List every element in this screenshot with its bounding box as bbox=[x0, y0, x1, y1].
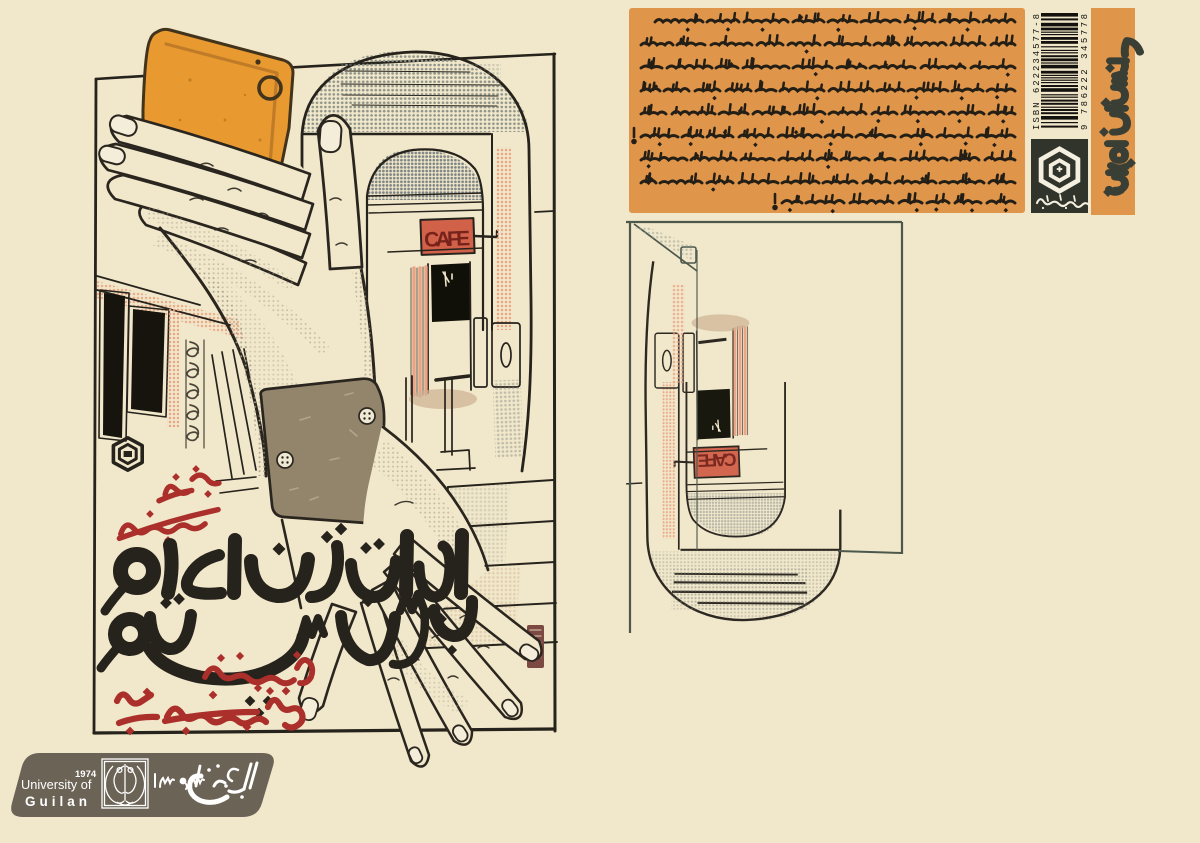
svg-text:Guilan: Guilan bbox=[25, 794, 91, 809]
svg-text:University of: University of bbox=[21, 777, 92, 792]
svg-text:ISBN 622234577-8: ISBN 622234577-8 bbox=[1032, 14, 1042, 130]
svg-text:9 786222 345778: 9 786222 345778 bbox=[1080, 14, 1090, 130]
